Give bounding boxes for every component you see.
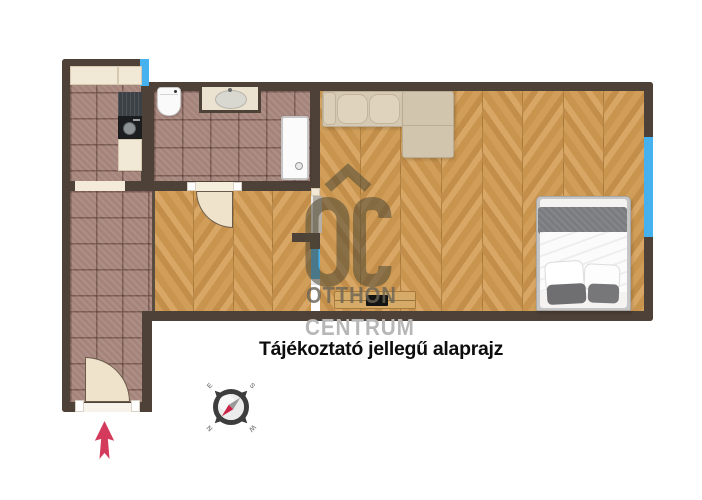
kitchen-sink-basin xyxy=(123,122,136,135)
door-jamb-entrance-left xyxy=(75,400,84,412)
wall-corridor-right xyxy=(142,311,152,412)
kitchen-sink-unit xyxy=(118,116,142,139)
sink-vanity xyxy=(199,84,261,113)
entrance-arrow-icon xyxy=(94,421,115,459)
toilet-tank-line xyxy=(160,94,178,95)
wood-plank-column xyxy=(155,188,193,311)
bed-blanket xyxy=(538,207,627,234)
corridor-floor-upper xyxy=(70,191,152,311)
kitchen-faucet xyxy=(133,119,140,121)
compass-label-e: E xyxy=(206,382,214,390)
door-jamb-bathroom-right xyxy=(233,182,242,191)
sofa-seam xyxy=(403,125,453,126)
sink-basin xyxy=(215,90,247,109)
door-opening-entrance xyxy=(83,403,132,412)
wood-plank-column xyxy=(233,188,272,311)
kitchen-stove xyxy=(118,92,142,116)
compass-label-n: N xyxy=(206,424,215,433)
watermark-otthon: OTTHON xyxy=(306,282,397,309)
bed-pillow-gray xyxy=(588,283,620,303)
compass-label-w: W xyxy=(247,423,257,433)
floor-transition-strip xyxy=(152,188,155,311)
wall-left xyxy=(62,59,70,412)
wood-plank-column xyxy=(482,91,523,311)
disclaimer-text: Tájékoztató jellegű alaprajz xyxy=(259,338,503,361)
watermark-centrum: CENTRUM xyxy=(305,314,415,341)
sofa-cushion xyxy=(337,94,368,124)
sofa-armrest xyxy=(323,92,336,125)
kitchen-counter-right xyxy=(118,66,142,85)
wall-kitchen-bathroom-divider xyxy=(141,82,154,181)
kitchen-cabinet xyxy=(118,139,142,171)
floor-plan: OTTHON CENTRUM Tájékoztató jellegű alapr… xyxy=(0,0,702,500)
door-opening-bathroom xyxy=(196,182,233,191)
toilet xyxy=(157,87,181,116)
toilet-flush-button xyxy=(174,90,177,93)
compass-label-s: S xyxy=(248,382,256,390)
bed-pillow-gray xyxy=(547,283,587,305)
passage-kitchen-corridor xyxy=(75,181,125,191)
hall-floor xyxy=(155,188,311,311)
window-bedroom xyxy=(644,137,653,237)
sink-faucet xyxy=(228,88,232,92)
sofa-chaise xyxy=(402,91,454,158)
door-jamb-entrance-right xyxy=(131,400,140,412)
kitchen-counter-left xyxy=(70,66,118,85)
door-jamb-bathroom-left xyxy=(187,182,196,191)
compass-rose-icon: E S N W xyxy=(203,379,259,435)
sofa-cushion xyxy=(369,94,400,124)
